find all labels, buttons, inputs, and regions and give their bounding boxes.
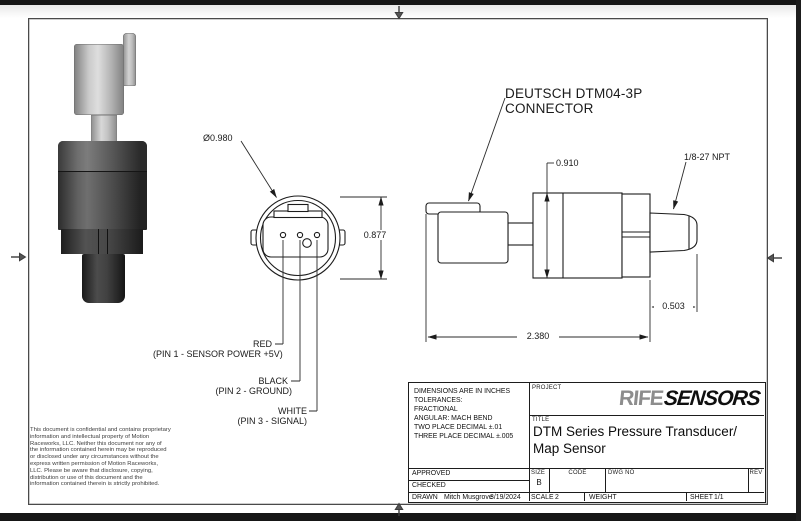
drawn-by: Mitch Musgrove xyxy=(444,494,493,502)
size-label: SIZE xyxy=(531,470,545,477)
titleblock-divider xyxy=(529,468,764,469)
weight-label: WEIGHT xyxy=(589,494,617,502)
approved-label: APPROVED xyxy=(412,470,450,478)
centering-arrow-right-icon xyxy=(768,254,783,261)
pin-3 xyxy=(314,232,319,237)
titleblock-divider xyxy=(686,492,687,501)
tolerance-notes: DIMENSIONS ARE IN INCHES TOLERANCES: FRA… xyxy=(414,387,513,441)
front-key-hole xyxy=(303,239,312,248)
body-height-label: 0.910 xyxy=(556,158,579,168)
side-body xyxy=(533,193,622,278)
side-npt-thread xyxy=(650,213,697,252)
front-height-label: 0.877 xyxy=(356,230,394,240)
logo-rife: RIFE xyxy=(618,386,664,411)
render-hex-facet-line xyxy=(107,229,108,254)
centering-arrow-bottom-icon xyxy=(395,504,402,517)
diameter-label: Ø0.980 xyxy=(203,133,233,143)
titleblock-divider xyxy=(584,492,585,501)
thread-length-label: 0.503 xyxy=(654,301,693,311)
pin1-color-label: RED xyxy=(192,339,272,349)
render-hex-nut xyxy=(61,229,143,254)
pin2-desc-label: (PIN 2 - GROUND) xyxy=(172,386,292,396)
dwg-no-label: DWG NO xyxy=(608,470,635,477)
centering-arrow-left-icon xyxy=(11,253,26,260)
drawing-title-line1: DTM Series Pressure Transducer/ xyxy=(533,423,737,440)
sheet-value: 1/1 xyxy=(714,494,724,502)
titleblock-divider xyxy=(409,492,764,493)
sheet-label: SHEET xyxy=(690,494,713,502)
isometric-render xyxy=(40,20,150,310)
side-view xyxy=(426,193,697,278)
render-connector-latch xyxy=(123,33,136,86)
drawing-title: DTM Series Pressure Transducer/ Map Sens… xyxy=(533,423,737,457)
side-neck xyxy=(508,223,533,245)
render-hex-facet-line xyxy=(98,229,99,254)
titleblock-divider xyxy=(409,468,529,469)
side-connector-housing xyxy=(438,212,508,263)
tolerance-line: FRACTIONAL xyxy=(414,405,513,414)
scale-value: 2 xyxy=(555,494,559,502)
pin3-desc-label: (PIN 3 - SIGNAL) xyxy=(187,416,307,426)
tolerance-line: TWO PLACE DECIMAL ±.01 xyxy=(414,423,513,432)
connector-callout-line1: DEUTSCH DTM04-3P xyxy=(505,86,642,101)
rev-label: REV xyxy=(748,470,764,477)
side-hex xyxy=(622,194,650,277)
tolerance-line: ANGULAR: MACH BEND xyxy=(414,414,513,423)
thread-spec-label: 1/8-27 NPT xyxy=(684,152,730,162)
render-body-rim xyxy=(58,141,147,172)
tolerance-line: DIMENSIONS ARE IN INCHES xyxy=(414,387,513,396)
tolerance-line: THREE PLACE DECIMAL ±.005 xyxy=(414,432,513,441)
drawing-title-line2: Map Sensor xyxy=(533,440,737,457)
front-latch-center xyxy=(288,205,308,212)
pin3-color-label: WHITE xyxy=(227,406,307,416)
project-label: PROJECT xyxy=(532,385,561,392)
front-view xyxy=(251,196,345,280)
render-thread-tip xyxy=(82,254,125,303)
titleblock-divider xyxy=(529,415,764,416)
render-neck xyxy=(91,115,117,142)
logo-sensors: SENSORS xyxy=(663,386,761,411)
pin2-color-label: BLACK xyxy=(208,376,288,386)
title-block: DIMENSIONS ARE IN INCHES TOLERANCES: FRA… xyxy=(408,382,766,503)
checked-label: CHECKED xyxy=(412,482,446,490)
confidentiality-note: This document is confidential and contai… xyxy=(30,427,171,488)
overall-length-label: 2.380 xyxy=(517,331,559,341)
pin-2 xyxy=(297,232,302,237)
pin-1 xyxy=(280,232,285,237)
scale-label: SCALE xyxy=(531,494,554,502)
code-label: CODE xyxy=(550,470,605,477)
rife-sensors-logo: RIFESENSORS xyxy=(619,386,760,411)
connector-callout-line2: CONNECTOR xyxy=(505,101,594,116)
render-connector-housing xyxy=(74,44,124,115)
pin1-desc-label: (PIN 1 - SENSOR POWER +5V) xyxy=(153,349,273,359)
drawn-label: DRAWN xyxy=(412,494,438,502)
tolerance-line: TOLERANCES: xyxy=(414,396,513,405)
size-value: B xyxy=(529,479,549,487)
centering-arrow-top-icon xyxy=(395,6,402,19)
titleblock-divider xyxy=(409,480,529,481)
drawn-date: 3/19/2024 xyxy=(490,494,521,502)
titleblock-divider xyxy=(605,468,606,492)
